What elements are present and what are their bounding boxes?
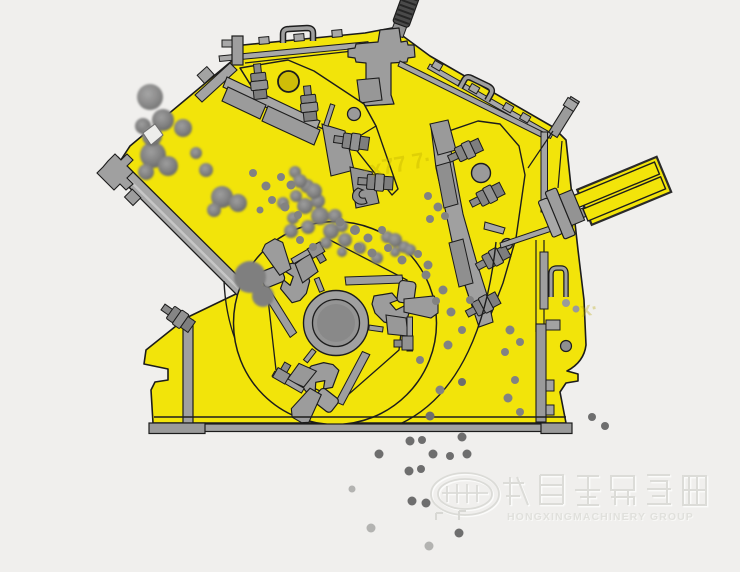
svg-text:HONGXINGMACHINERY GROUP: HONGXINGMACHINERY GROUP: [507, 511, 694, 523]
